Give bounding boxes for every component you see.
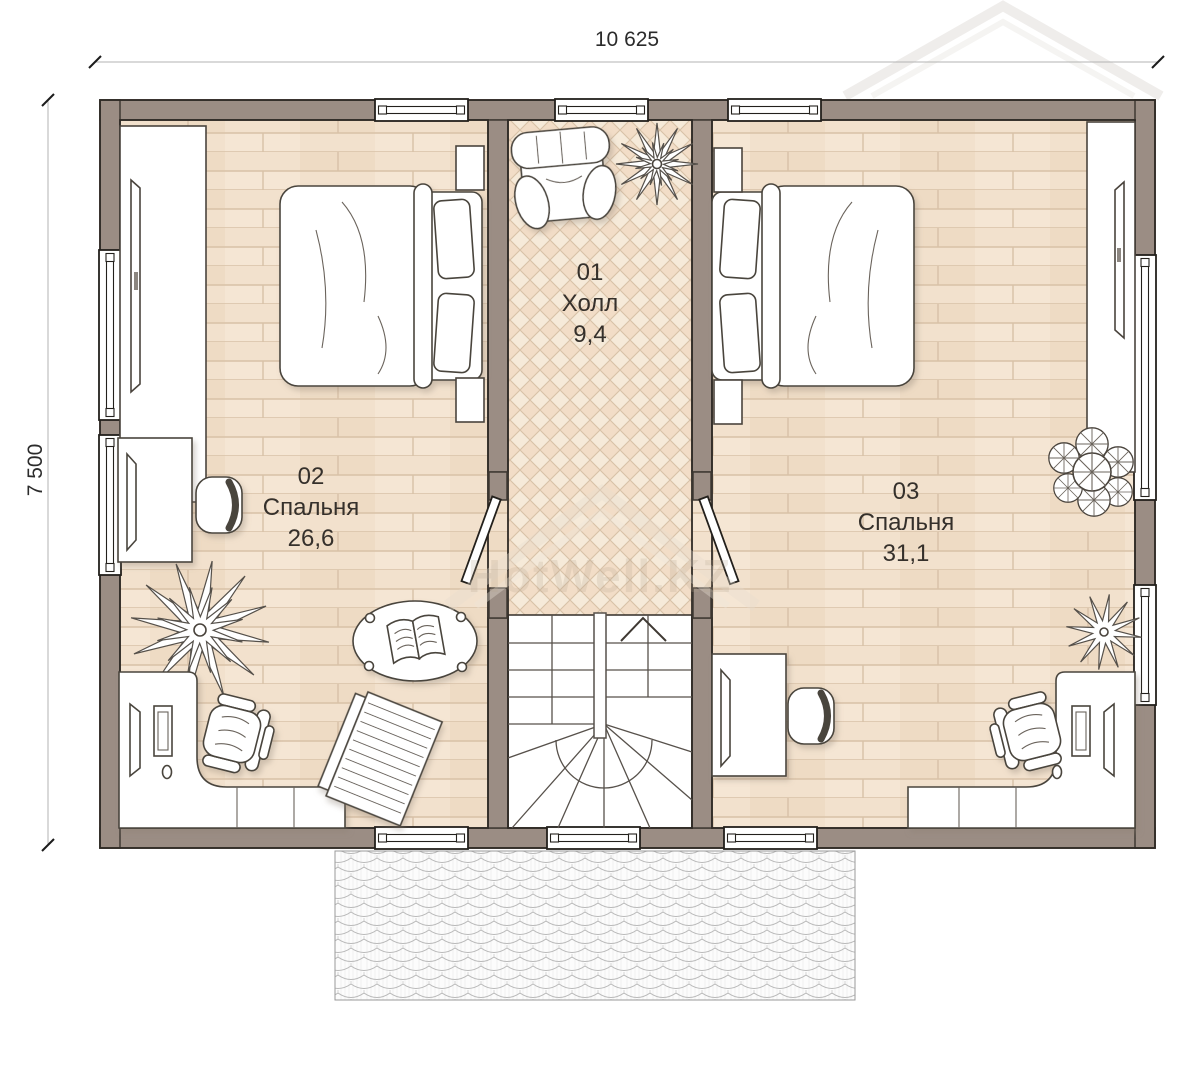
wardrobe-symbol [1087, 122, 1135, 472]
dimension-line-top [89, 56, 1164, 68]
room-area: 26,6 [263, 523, 359, 554]
window [555, 99, 648, 121]
window [724, 827, 817, 849]
floor-plan: 10 625 7 500 01 Холл 9,4 02 Спальня 26,6… [0, 0, 1200, 1082]
window [99, 250, 121, 420]
porch-roof [335, 851, 855, 1000]
nightstand-symbol [456, 146, 484, 190]
room-label-bedroom-02: 02 Спальня 26,6 [263, 461, 359, 554]
nightstand-symbol [714, 380, 742, 424]
chair-symbol [788, 688, 834, 744]
room-label-hall: 01 Холл 9,4 [562, 257, 619, 350]
room-name: Холл [562, 288, 619, 319]
window [1134, 255, 1156, 500]
dimension-height-label: 7 500 [24, 444, 48, 497]
room-number: 02 [263, 461, 359, 492]
room-number: 03 [858, 476, 954, 507]
floor-plan-drawing [0, 0, 1200, 1082]
window [375, 99, 468, 121]
coffee-table-symbol [353, 601, 477, 681]
nightstand-symbol [714, 148, 742, 192]
room-name: Спальня [263, 492, 359, 523]
watermark: HotWell.KZ [468, 549, 732, 603]
window [728, 99, 821, 121]
room-name: Спальня [858, 507, 954, 538]
dimension-width-label: 10 625 [595, 28, 659, 52]
double-bed-symbol [712, 184, 914, 388]
chair-symbol [196, 477, 242, 533]
roof-outline-ghost [845, 6, 1161, 96]
room-number: 01 [562, 257, 619, 288]
room-area: 9,4 [562, 319, 619, 350]
room-label-bedroom-03: 03 Спальня 31,1 [858, 476, 954, 569]
window [547, 827, 640, 849]
room-area: 31,1 [858, 538, 954, 569]
nightstand-symbol [456, 378, 484, 422]
window [1134, 585, 1156, 705]
double-bed-symbol [280, 184, 482, 388]
window [375, 827, 468, 849]
